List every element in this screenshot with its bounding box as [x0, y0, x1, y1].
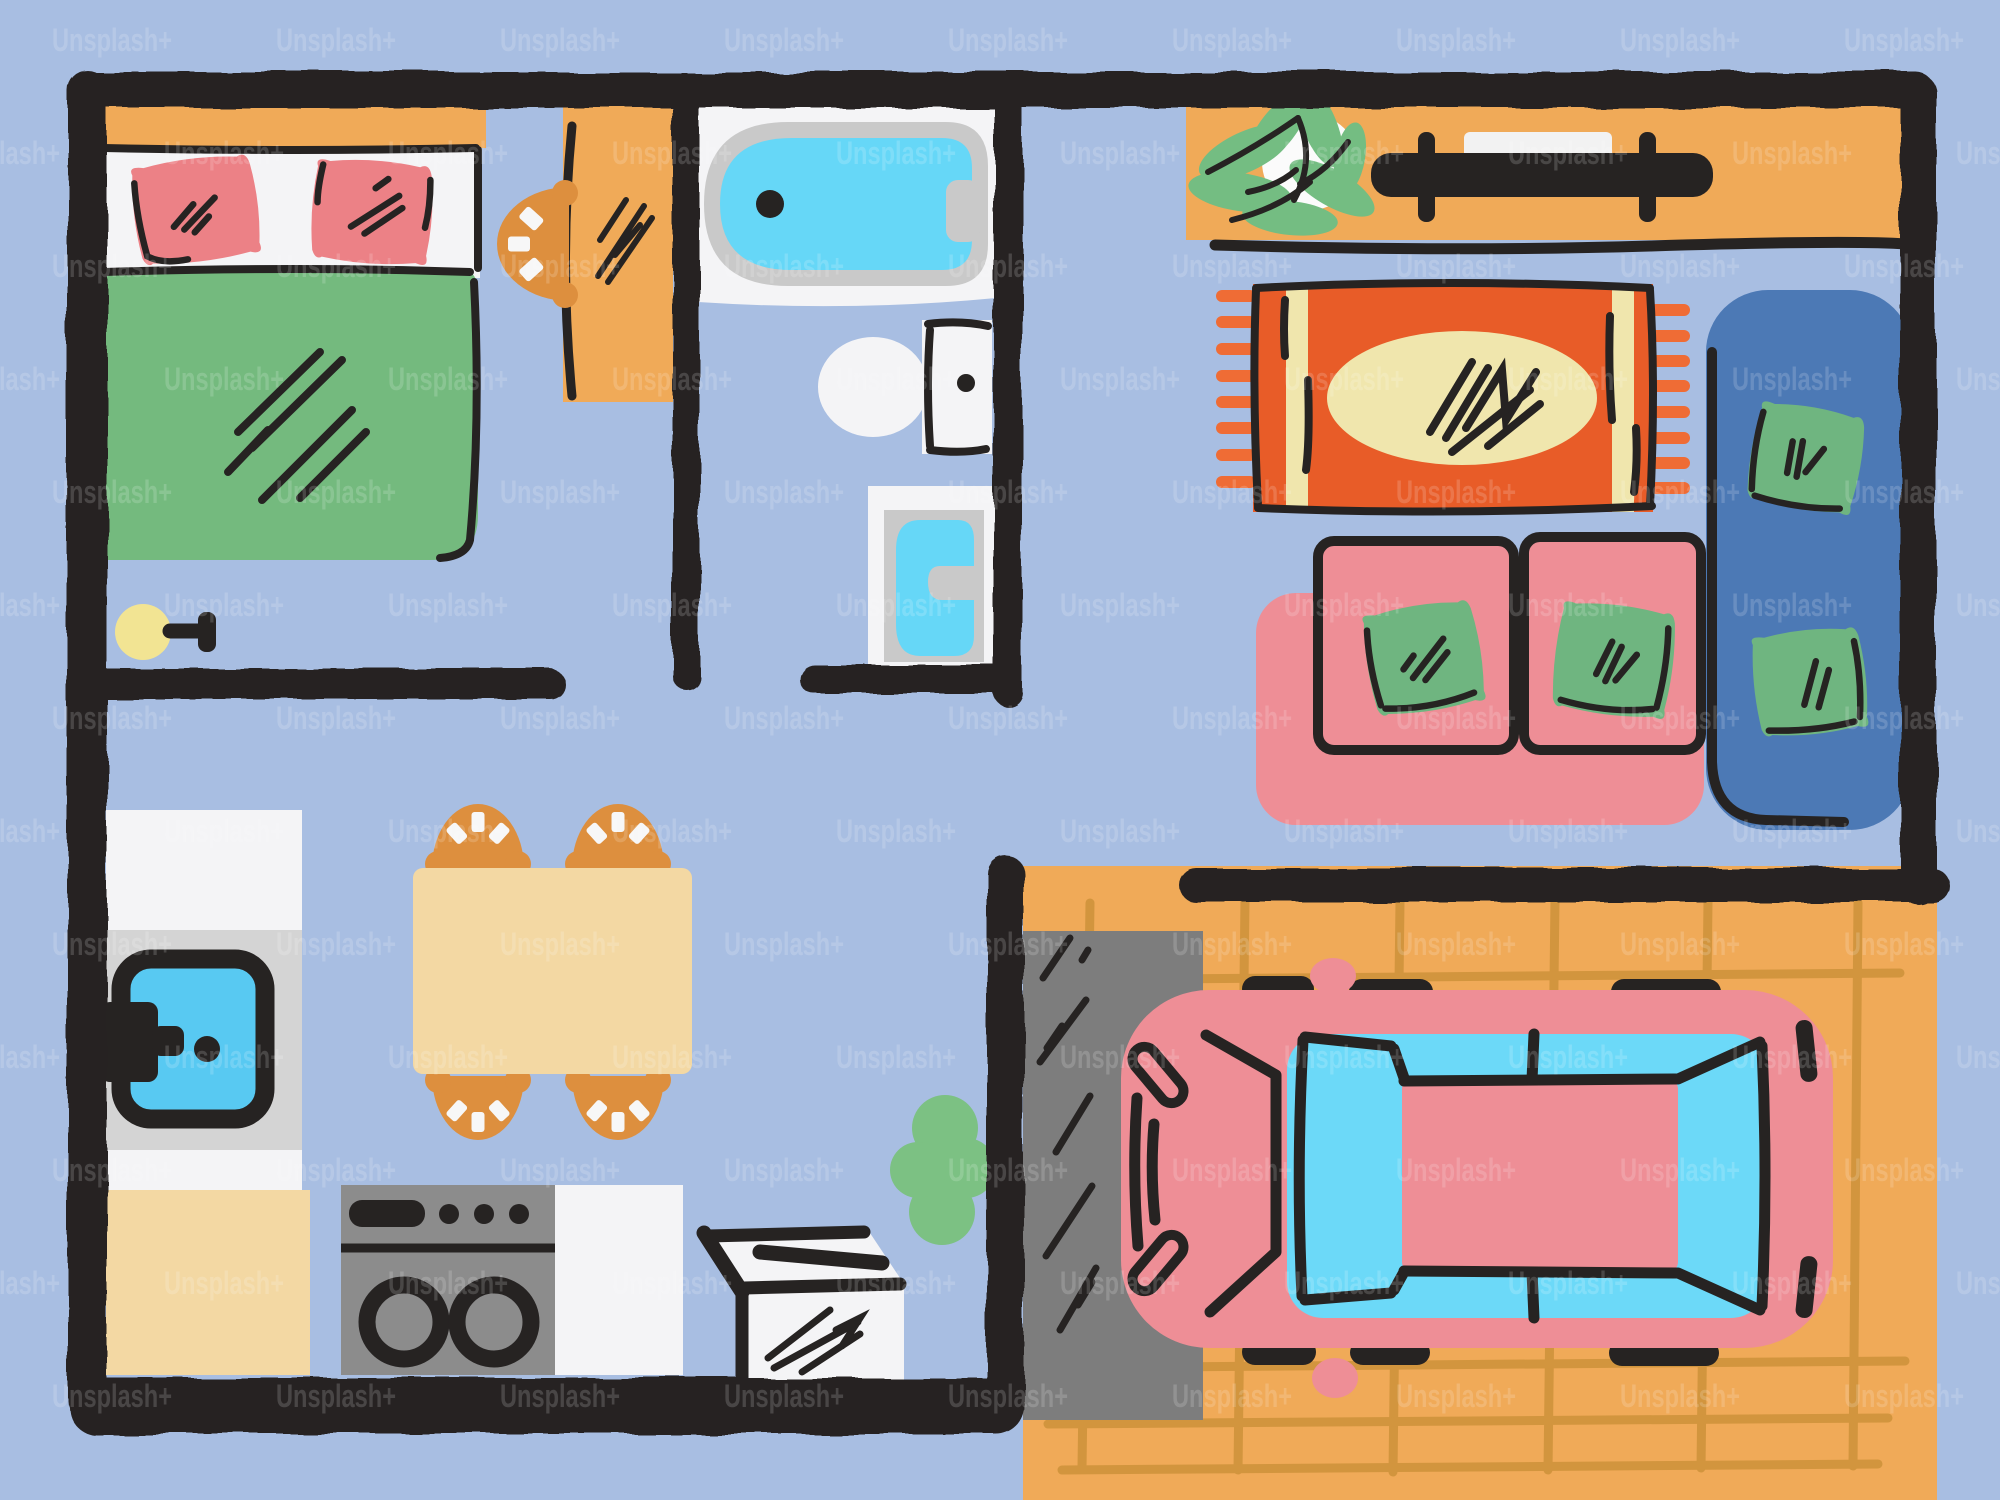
- svg-text:Unsplash+Unsplash+Unsplash+Uns: Unsplash+Unsplash+Unsplash+Unsplash+Unsp…: [52, 1378, 1964, 1414]
- svg-text:Unsplash+Unsplash+Unsplash+Uns: Unsplash+Unsplash+Unsplash+Unsplash+Unsp…: [52, 1152, 1964, 1188]
- svg-text:Unsplash+Unsplash+Unsplash+Uns: Unsplash+Unsplash+Unsplash+Unsplash+Unsp…: [52, 700, 1964, 736]
- svg-text:Unsplash+Unsplash+Unsplash+Uns: Unsplash+Unsplash+Unsplash+Unsplash+Unsp…: [52, 926, 1964, 962]
- svg-text:Unsplash+Unsplash+Unsplash+Uns: Unsplash+Unsplash+Unsplash+Unsplash+Unsp…: [52, 22, 1964, 58]
- svg-text:Unsplash+Unsplash+Unsplash+Uns: Unsplash+Unsplash+Unsplash+Unsplash+Unsp…: [52, 474, 1964, 510]
- svg-text:Unsplash+Unsplash+Unsplash+Uns: Unsplash+Unsplash+Unsplash+Unsplash+Unsp…: [52, 248, 1964, 284]
